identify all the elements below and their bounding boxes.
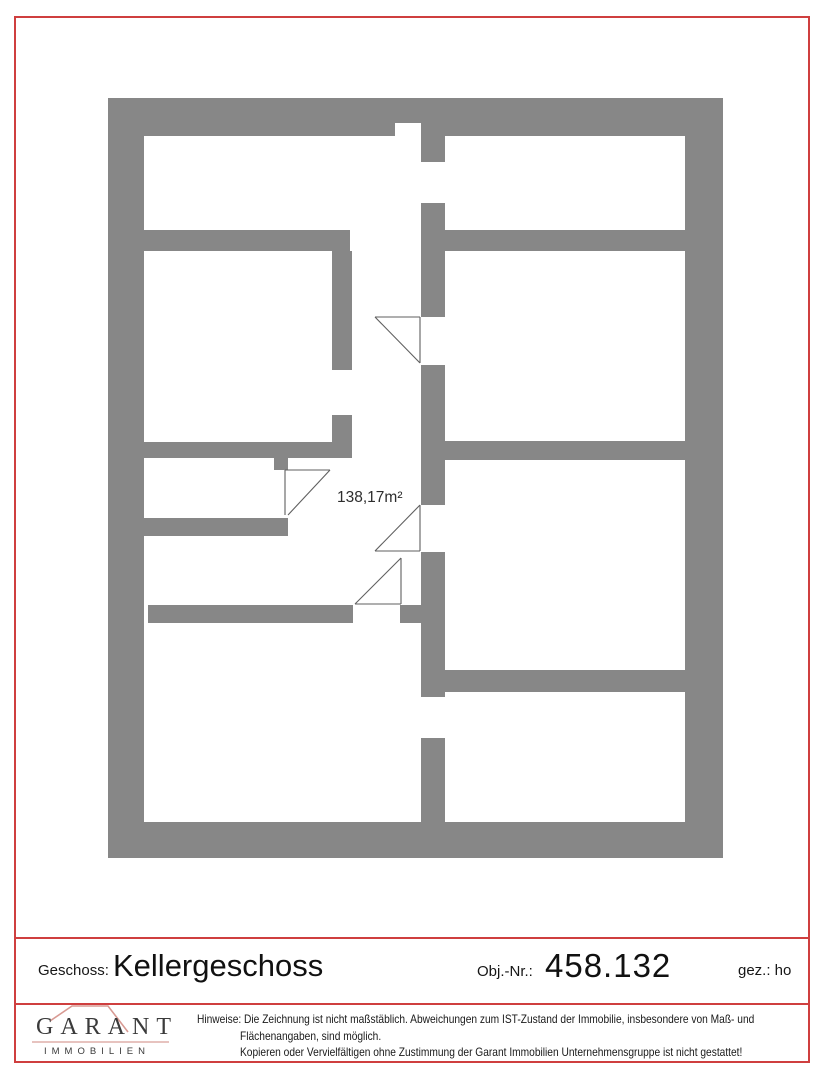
wall-left-room-divider <box>144 230 350 251</box>
door-line <box>355 558 401 604</box>
door-swing-bottom-left-room <box>355 558 401 604</box>
floorplan-drawing: 138,17m² <box>0 0 829 1080</box>
wall-niche-door-stub <box>274 458 288 470</box>
wall-bottom-left-room-top <box>148 605 353 623</box>
wall-outer-left <box>108 98 144 858</box>
wall-left-middle <box>144 442 352 458</box>
wall-right-divider-lower <box>445 670 685 692</box>
disclaimer-line-3: Kopieren oder Vervielfältigen ohne Zusti… <box>240 1045 742 1059</box>
door-line <box>288 470 330 515</box>
area-label: 138,17m² <box>337 489 402 506</box>
garant-logo-subtitle: IMMOBILIEN <box>44 1046 150 1057</box>
door-line <box>375 317 420 363</box>
wall-center-middle <box>421 365 445 505</box>
gez-value: gez.: ho <box>738 962 791 979</box>
separator-title-top <box>14 937 810 939</box>
geschoss-value: Kellergeschoss <box>113 948 323 984</box>
wall-right-divider-upper <box>445 230 685 251</box>
wall-center-jog <box>400 605 421 623</box>
disclaimer-line-1: Hinweise: Die Zeichnung ist nicht maßstä… <box>197 1012 754 1026</box>
floorplan-page: 138,17m² Geschoss: Kellergeschoss Obj.-N… <box>0 0 829 1080</box>
wall-left-vertical-upper <box>332 251 352 370</box>
geschoss-label: Geschoss: <box>38 962 109 979</box>
door-swing-middle-right-lower <box>375 505 420 551</box>
door-swing-niche <box>285 470 330 515</box>
disclaimer-line-2: Flächenangaben, sind möglich. <box>240 1029 381 1043</box>
door-line <box>375 505 420 551</box>
garant-logo-name: GARANT <box>36 1014 178 1041</box>
wall-outer-bottom <box>108 822 723 858</box>
garant-logo-underline <box>32 1041 169 1043</box>
door-swing-middle-right-upper <box>375 317 420 363</box>
obj-nr-value: 458.132 <box>545 947 671 985</box>
wall-right-divider-middle <box>445 441 685 460</box>
wall-niche-bottom <box>144 518 288 536</box>
wall-center-top-stub <box>421 136 445 162</box>
obj-nr-label: Obj.-Nr.: <box>477 963 533 980</box>
wall-center-lower <box>421 552 445 697</box>
wall-center-bottom <box>421 738 445 822</box>
wall-top-notch <box>395 123 421 136</box>
wall-outer-right <box>685 98 723 858</box>
wall-center-upper <box>421 203 445 317</box>
